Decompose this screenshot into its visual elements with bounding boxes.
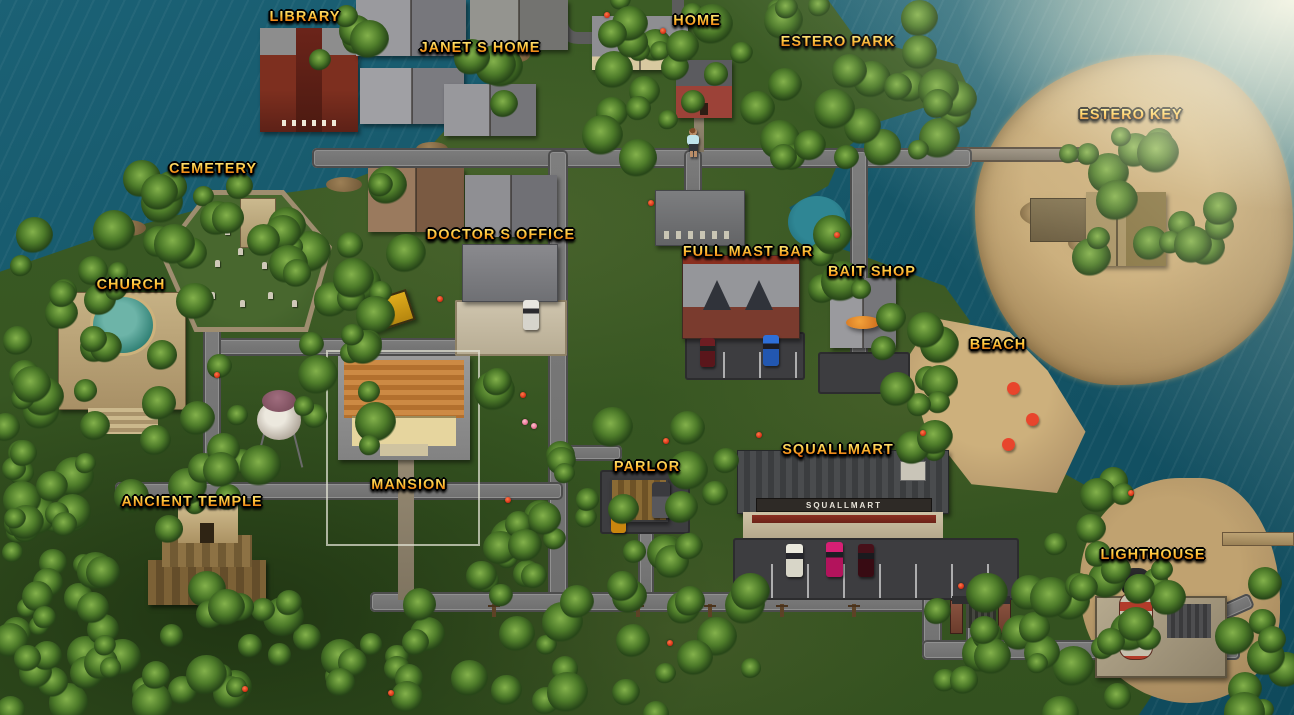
flower bbox=[667, 640, 673, 646]
power-pole bbox=[780, 604, 784, 617]
flower bbox=[648, 200, 654, 206]
palm-tree bbox=[402, 629, 429, 656]
map-label-bait-shop[interactable]: BAIT SHOP bbox=[828, 264, 916, 280]
beach-umbrella bbox=[1026, 413, 1039, 426]
palm-tree bbox=[619, 139, 658, 178]
map-label-ancient-temple[interactable]: ANCIENT TEMPLE bbox=[121, 494, 262, 510]
squallmart-storefront-sign: SQUALLMART bbox=[756, 498, 932, 512]
palm-tree bbox=[1248, 567, 1282, 601]
palm-tree bbox=[360, 633, 383, 656]
power-pole bbox=[708, 604, 712, 617]
flamingo bbox=[522, 419, 528, 425]
palm-tree bbox=[333, 258, 374, 299]
palm-tree bbox=[1027, 653, 1048, 674]
palm-tree bbox=[350, 20, 389, 59]
squallmart-awning bbox=[752, 515, 936, 523]
palm-tree bbox=[226, 173, 252, 199]
doctors-office-building[interactable] bbox=[462, 244, 558, 302]
palm-tree bbox=[155, 515, 184, 544]
map-label-church[interactable]: CHURCH bbox=[97, 277, 166, 293]
bait-shop-fish-sign bbox=[846, 316, 880, 329]
palm-tree bbox=[675, 533, 702, 560]
palm-tree bbox=[1076, 514, 1106, 544]
palm-tree bbox=[966, 573, 1007, 614]
palm-tree bbox=[208, 589, 245, 626]
palm-tree bbox=[592, 407, 633, 448]
beach-umbrella bbox=[1002, 438, 1015, 451]
palm-tree bbox=[677, 640, 713, 676]
palm-tree bbox=[491, 675, 521, 705]
palm-tree bbox=[1124, 574, 1154, 604]
palm-tree bbox=[36, 471, 68, 503]
gravestone bbox=[215, 260, 220, 267]
flower bbox=[604, 12, 610, 18]
map-label-home[interactable]: HOME bbox=[673, 13, 721, 29]
palm-tree bbox=[808, 0, 830, 17]
palm-tree bbox=[403, 588, 437, 622]
car-darkred bbox=[700, 338, 715, 367]
civic-building bbox=[655, 190, 745, 246]
flower bbox=[437, 296, 443, 302]
palm-tree bbox=[1080, 478, 1115, 513]
palm-tree bbox=[489, 584, 512, 607]
flower bbox=[958, 583, 964, 589]
palm-tree bbox=[147, 340, 177, 370]
map-label-library[interactable]: LIBRARY bbox=[270, 9, 341, 25]
flower bbox=[756, 432, 762, 438]
palm-tree bbox=[142, 661, 170, 689]
map-label-estero-park[interactable]: ESTERO PARK bbox=[781, 34, 896, 50]
palm-tree bbox=[337, 232, 364, 259]
palm-tree bbox=[142, 386, 177, 421]
map-label-beach[interactable]: BEACH bbox=[970, 337, 1027, 353]
flower bbox=[214, 372, 220, 378]
palm-tree bbox=[560, 585, 594, 619]
palm-tree bbox=[521, 563, 547, 589]
flower bbox=[520, 392, 526, 398]
beach-umbrella bbox=[1007, 382, 1020, 395]
island-map: SQUALLMART LIBRARYJANET S HOMEHOMEESTERO… bbox=[0, 0, 1294, 715]
map-label-lighthouse[interactable]: LIGHTHOUSE bbox=[1100, 547, 1205, 563]
palm-tree bbox=[240, 445, 282, 487]
palm-tree bbox=[547, 672, 587, 712]
palm-tree bbox=[908, 140, 928, 160]
palm-tree bbox=[186, 655, 227, 696]
palm-tree bbox=[3, 326, 33, 356]
palm-tree bbox=[813, 215, 852, 254]
car-blue bbox=[763, 335, 779, 366]
palm-tree bbox=[670, 411, 705, 446]
palm-tree bbox=[326, 668, 355, 697]
flower bbox=[660, 28, 666, 34]
palm-tree bbox=[490, 90, 518, 118]
palm-tree bbox=[298, 355, 338, 395]
flower bbox=[920, 430, 926, 436]
pier bbox=[1222, 532, 1294, 546]
palm-tree bbox=[901, 0, 938, 37]
palm-tree bbox=[283, 259, 312, 288]
gravestone bbox=[262, 262, 267, 269]
palm-tree bbox=[141, 174, 178, 211]
palm-tree bbox=[1044, 533, 1067, 556]
palm-tree bbox=[1111, 127, 1131, 147]
palm-tree bbox=[16, 217, 53, 254]
palm-tree bbox=[268, 643, 292, 667]
player-marker bbox=[686, 128, 700, 158]
palm-tree bbox=[451, 660, 488, 697]
palm-tree bbox=[950, 666, 979, 695]
flower bbox=[663, 438, 669, 444]
palm-tree bbox=[33, 606, 56, 629]
palm-tree bbox=[1087, 227, 1110, 250]
palm-tree bbox=[902, 35, 937, 70]
palm-tree bbox=[1104, 683, 1132, 711]
palm-tree bbox=[4, 508, 25, 529]
palm-tree bbox=[713, 448, 739, 474]
palm-tree bbox=[851, 279, 871, 299]
palm-tree bbox=[358, 381, 379, 402]
flower bbox=[388, 690, 394, 696]
palm-tree bbox=[924, 598, 951, 625]
palm-tree bbox=[212, 202, 245, 235]
car-maroon bbox=[858, 544, 874, 577]
palm-tree bbox=[884, 73, 912, 101]
power-pole bbox=[852, 604, 856, 617]
shore-rock bbox=[326, 177, 362, 192]
palm-tree bbox=[341, 324, 363, 346]
palm-tree bbox=[730, 42, 752, 64]
palm-tree bbox=[160, 624, 183, 647]
flower bbox=[505, 497, 511, 503]
flower bbox=[1128, 490, 1134, 496]
palm-tree bbox=[499, 616, 535, 652]
palm-tree bbox=[14, 645, 41, 672]
car-white bbox=[523, 300, 539, 330]
palm-tree bbox=[702, 481, 728, 507]
palm-tree bbox=[154, 224, 195, 265]
gravestone bbox=[268, 292, 273, 299]
palm-tree bbox=[238, 634, 262, 658]
palm-tree bbox=[74, 379, 97, 402]
palm-tree bbox=[10, 440, 37, 467]
palm-tree bbox=[294, 396, 314, 416]
palm-tree bbox=[741, 658, 762, 679]
palm-tree bbox=[80, 326, 107, 353]
gravestone bbox=[292, 300, 297, 307]
janets-house[interactable] bbox=[444, 84, 536, 136]
car-magenta bbox=[826, 542, 843, 577]
palm-tree bbox=[483, 368, 512, 397]
map-label-squallmart[interactable]: SQUALLMART bbox=[782, 442, 894, 458]
palm-tree bbox=[1118, 607, 1154, 643]
palm-tree bbox=[75, 453, 96, 474]
map-label-mansion[interactable]: MANSION bbox=[371, 477, 446, 493]
palm-tree bbox=[768, 68, 802, 102]
car-white bbox=[786, 544, 803, 577]
palm-tree bbox=[93, 210, 135, 252]
palm-tree bbox=[10, 255, 32, 277]
palm-tree bbox=[227, 405, 248, 426]
palm-tree bbox=[100, 657, 122, 679]
gravestone bbox=[240, 300, 245, 307]
mansion-building[interactable] bbox=[338, 356, 470, 460]
map-label-cemetery[interactable]: CEMETERY bbox=[169, 161, 257, 177]
palm-tree bbox=[13, 366, 51, 404]
palm-tree bbox=[52, 512, 77, 537]
map-label-estero-key[interactable]: ESTERO KEY bbox=[1079, 107, 1182, 123]
palm-tree bbox=[626, 96, 651, 121]
palm-tree bbox=[1137, 132, 1179, 174]
palm-tree bbox=[917, 420, 952, 455]
palm-tree bbox=[368, 173, 392, 197]
full-mast-bar-building[interactable] bbox=[682, 255, 800, 339]
palm-tree bbox=[49, 281, 76, 308]
palm-tree bbox=[86, 556, 119, 589]
palm-tree bbox=[876, 303, 906, 333]
palm-tree bbox=[1096, 180, 1138, 222]
palm-tree bbox=[612, 679, 639, 706]
map-label-doctors-office[interactable]: DOCTOR S OFFICE bbox=[427, 227, 575, 243]
palm-tree bbox=[1150, 580, 1186, 616]
gravestone bbox=[238, 248, 243, 255]
palm-tree bbox=[794, 130, 826, 162]
map-label-parlor[interactable]: PARLOR bbox=[614, 459, 680, 475]
flower bbox=[242, 686, 248, 692]
palm-tree bbox=[576, 488, 600, 512]
map-label-janets-home[interactable]: JANET S HOME bbox=[420, 40, 541, 56]
palm-tree bbox=[675, 586, 706, 617]
palm-tree bbox=[466, 561, 496, 591]
flamingo bbox=[531, 423, 537, 429]
palm-tree bbox=[731, 573, 769, 611]
palm-tree bbox=[309, 49, 331, 71]
palm-tree bbox=[770, 144, 797, 171]
palm-tree bbox=[176, 283, 213, 320]
doctors-parking bbox=[455, 300, 567, 356]
palm-tree bbox=[607, 571, 638, 602]
palm-tree bbox=[386, 234, 425, 273]
palm-tree bbox=[508, 529, 541, 562]
palm-tree bbox=[77, 592, 109, 624]
palm-tree bbox=[623, 540, 647, 564]
flower bbox=[834, 232, 840, 238]
palm-tree bbox=[970, 616, 999, 645]
palm-tree bbox=[832, 54, 867, 89]
map-label-full-mast-bar[interactable]: FULL MAST BAR bbox=[683, 244, 813, 260]
